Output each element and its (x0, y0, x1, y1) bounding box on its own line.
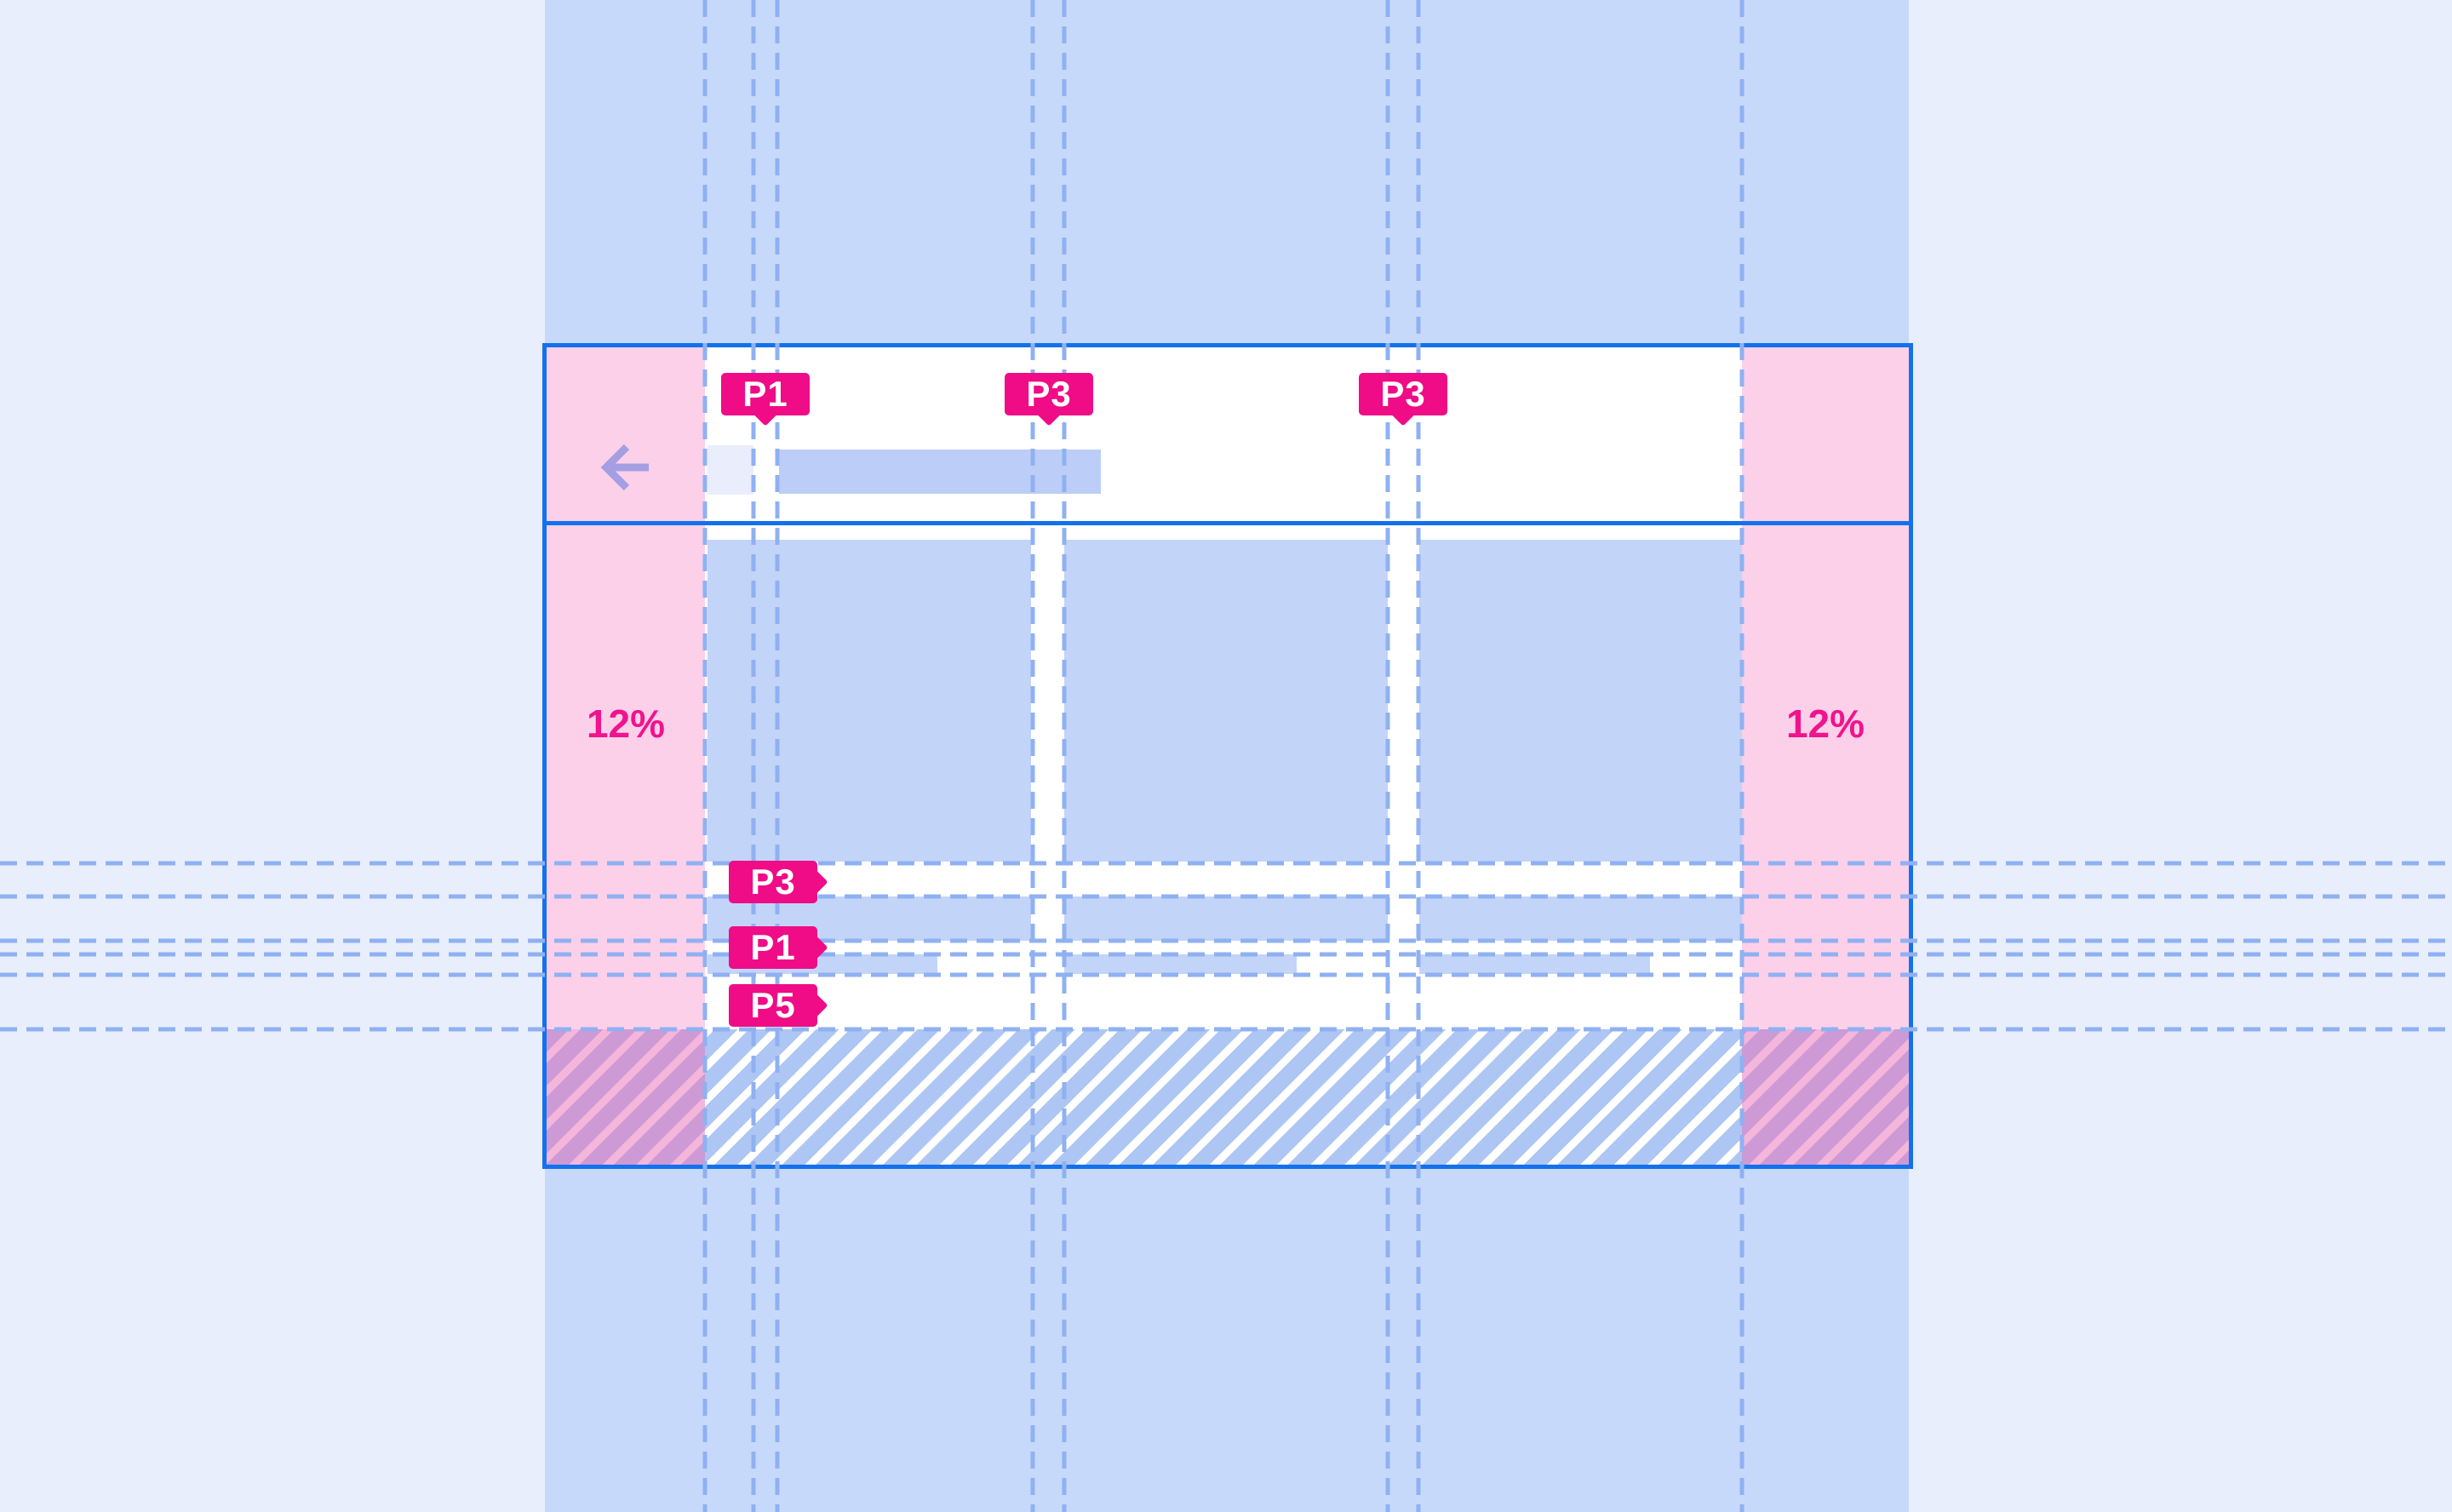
card-placeholder (708, 540, 1031, 862)
padding-chip-p1-top: P1 (721, 373, 810, 415)
padding-chip-p3-gutter1: P3 (1005, 373, 1093, 415)
chip-label: P3 (750, 862, 795, 902)
text-row-placeholder (1064, 954, 1297, 974)
right-margin-region (1742, 347, 1909, 1029)
chip-label: P5 (750, 985, 795, 1026)
hatched-margin-left (547, 1029, 705, 1165)
title-placeholder (779, 450, 1101, 494)
nav-icon-placeholder (708, 445, 753, 495)
right-margin-label: 12% (1742, 698, 1909, 749)
padding-chip-p5-row: P5 (729, 984, 817, 1027)
appbar-divider (547, 521, 1909, 525)
text-row-placeholder (1419, 896, 1742, 941)
padding-chip-p3-row: P3 (729, 861, 817, 903)
left-margin-label: 12% (547, 698, 705, 749)
padding-chip-p1-row: P1 (729, 926, 817, 969)
chip-label: P3 (1026, 374, 1071, 415)
chip-label: P3 (1380, 374, 1425, 415)
arrow-back-icon[interactable] (598, 440, 652, 495)
padding-chip-p3-gutter2: P3 (1359, 373, 1447, 415)
hatched-system-area (547, 1029, 1909, 1165)
text-row-placeholder (1064, 896, 1388, 941)
chip-label: P1 (742, 374, 788, 415)
card-placeholder (1419, 540, 1742, 862)
hatched-margin-right (1742, 1029, 1909, 1165)
text-row-placeholder (1419, 954, 1650, 974)
chip-label: P1 (750, 927, 795, 968)
card-placeholder (1064, 540, 1388, 862)
layout-spec-canvas: 12% 12% P1 P3 P3 P3 P1 (0, 0, 2452, 1512)
